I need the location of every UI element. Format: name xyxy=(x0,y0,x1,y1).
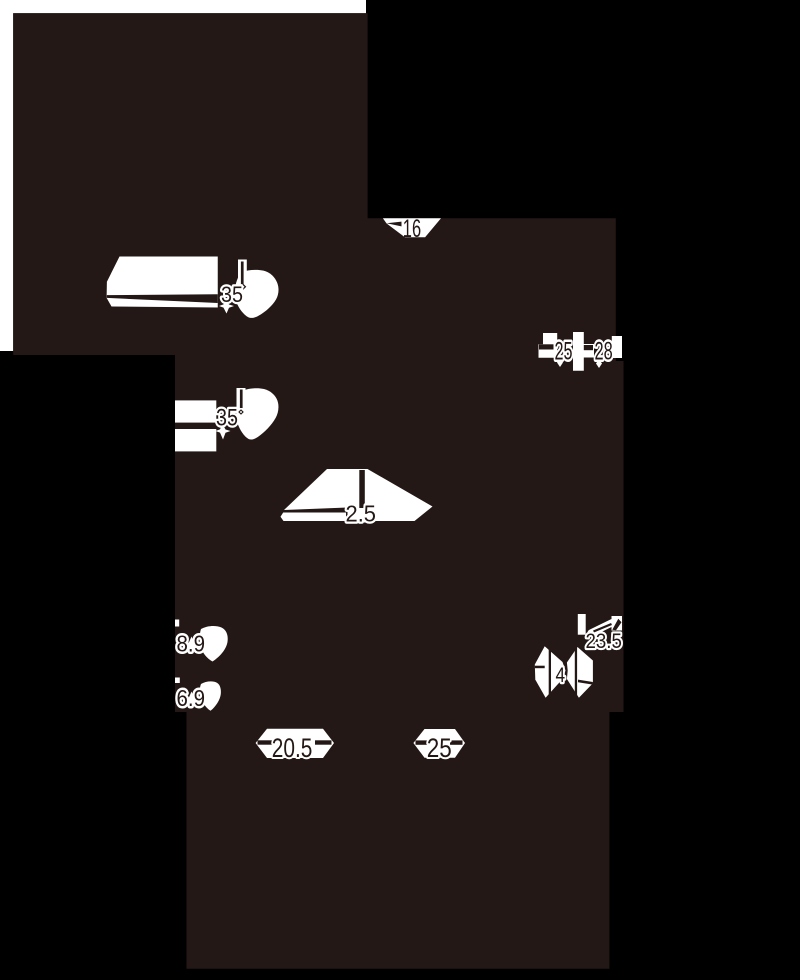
svg-text:4: 4 xyxy=(556,664,566,687)
svg-text:35: 35 xyxy=(216,405,238,432)
svg-text:35: 35 xyxy=(221,282,243,307)
svg-text:23.5: 23.5 xyxy=(586,630,622,653)
svg-text:25: 25 xyxy=(427,733,452,763)
svg-text:2.5: 2.5 xyxy=(346,501,377,527)
svg-text:16: 16 xyxy=(403,215,421,243)
svg-text:6.9: 6.9 xyxy=(177,685,206,711)
svg-text:25: 25 xyxy=(555,338,573,366)
svg-text:20.5: 20.5 xyxy=(272,733,313,763)
svg-text:28: 28 xyxy=(595,338,613,366)
svg-text:8.9: 8.9 xyxy=(177,631,206,657)
